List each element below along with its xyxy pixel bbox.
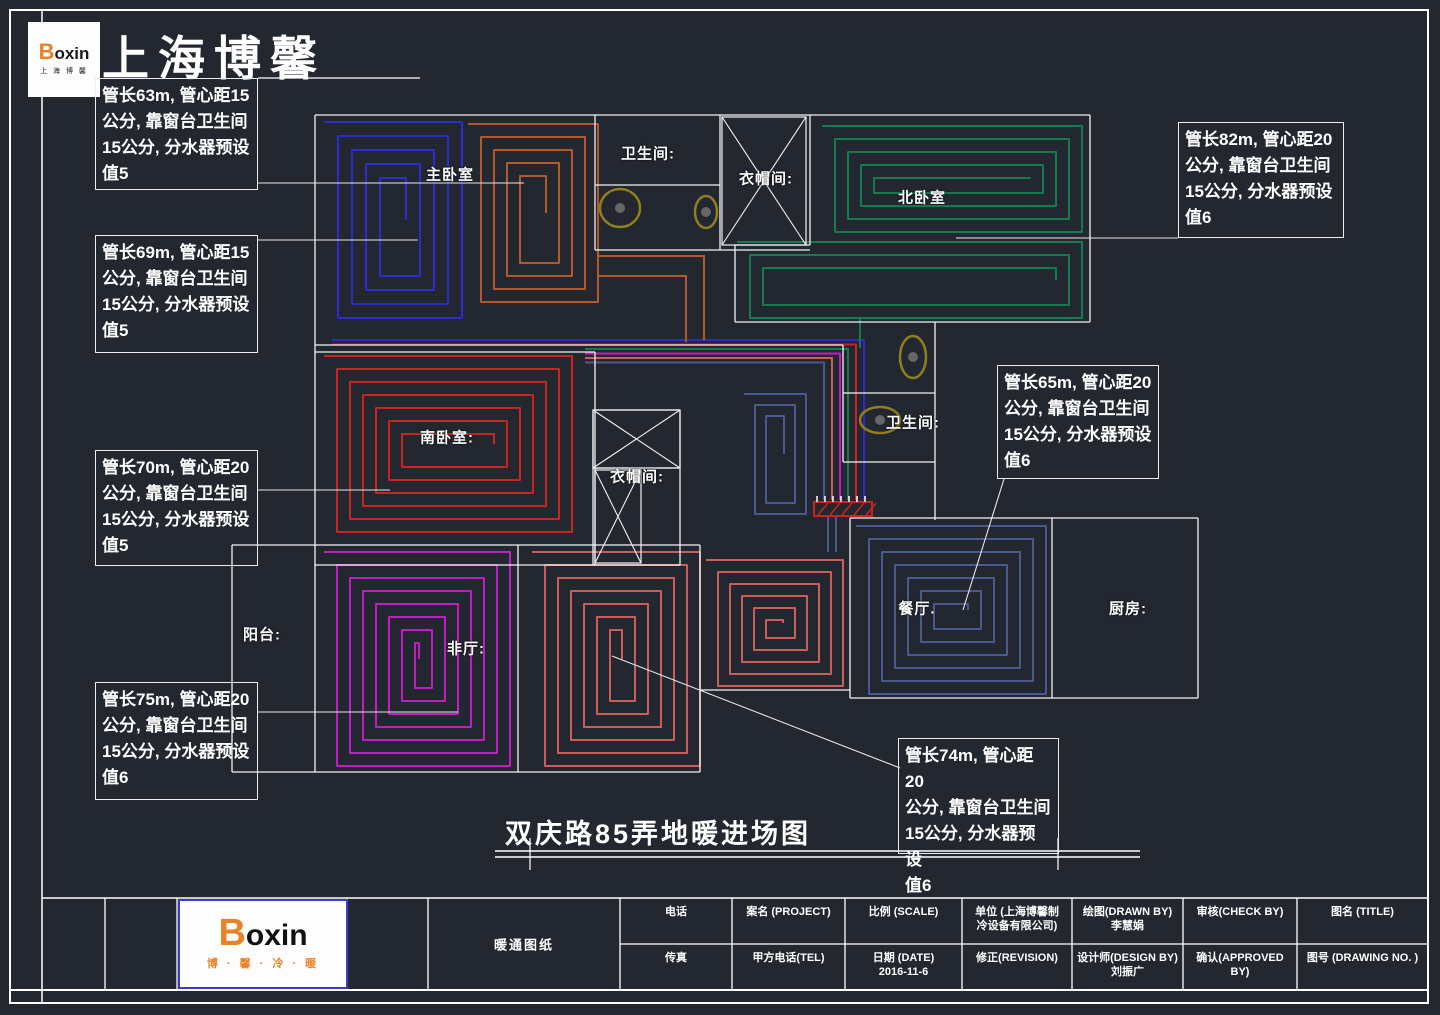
titleblock-cell-line: 单位 (上海博馨制 (965, 905, 1069, 919)
annotation-box-5: 管长82m, 管心距20公分, 靠窗台卫生间15公分, 分水器预设值6 (1178, 122, 1344, 238)
annotation-line: 公分, 靠窗台卫生间 (102, 481, 251, 507)
titleblock-cell: 单位 (上海博馨制冷设备有限公司) (965, 905, 1069, 943)
cad-drawing-canvas: Boxin 上 海 博 馨 上海博馨 双庆路85弄地暖进场图 Boxin 博 ·… (0, 0, 1440, 1015)
heating-coil-north-b (737, 242, 1082, 318)
pipe-bundle (332, 345, 856, 501)
annotation-line: 值5 (102, 318, 251, 344)
annotation-line: 值6 (1185, 205, 1337, 231)
titleblock-cell-line: 日期 (DATE) (848, 951, 959, 965)
titleblock-cell-line: 设计师(DESIGN BY) (1075, 951, 1180, 965)
titleblock-cell: 审核(CHECK BY) (1186, 905, 1294, 943)
leader-line (963, 479, 1004, 610)
titleblock-cell: 确认(APPROVED BY) (1186, 951, 1294, 989)
room-label-9: 非厅: (447, 638, 485, 659)
annotation-line: 管长63m, 管心距15 (102, 83, 251, 109)
logo-wordmark: Boxin (39, 43, 90, 63)
room-label-1: 主卧室 (426, 164, 474, 185)
annotation-line: 公分, 靠窗台卫生间 (102, 109, 251, 135)
titleblock-cell-line: 李慧娟 (1075, 919, 1180, 933)
doc-type-label: 暖通图纸 (494, 935, 554, 954)
fixture-drain-icon (908, 352, 918, 362)
logo-tagline: 博 · 馨 · 冷 · 暖 (207, 955, 319, 971)
logo-letter-b: B (39, 39, 55, 64)
titleblock-cell-line: 图名 (TITLE) (1300, 905, 1425, 919)
annotation-box-7: 管长74m, 管心距20公分, 靠窗台卫生间15公分, 分水器预设值6 (898, 738, 1059, 854)
titleblock-cell-line: 审核(CHECK BY) (1186, 905, 1294, 919)
room-label-8: 阳台: (243, 624, 281, 645)
heating-coil-master-orange (468, 124, 598, 302)
annotation-line: 公分, 靠窗台卫生间 (1004, 396, 1152, 422)
titleblock-cell-line: 甲方电话(TEL) (735, 951, 842, 965)
annotation-line: 15公分, 分水器预设 (102, 507, 251, 533)
titleblock-cell-line: 比例 (SCALE) (848, 905, 959, 919)
room-label-6: 衣帽间: (610, 466, 664, 487)
heating-coil-center-2 (706, 560, 843, 686)
annotation-line: 值5 (102, 161, 251, 187)
annotation-line: 管长65m, 管心距20 (1004, 370, 1152, 396)
room-label-11: 厨房: (1109, 598, 1147, 619)
annotation-line: 值6 (102, 765, 251, 791)
company-logo-titleblock: Boxin 博 · 馨 · 冷 · 暖 (181, 902, 345, 987)
heating-coil-master-blue (324, 122, 462, 318)
annotation-box-3: 管长70m, 管心距20公分, 靠窗台卫生间15公分, 分水器预设值5 (95, 450, 258, 566)
titleblock-cell: 日期 (DATE)2016-11-6 (848, 951, 959, 989)
annotation-line: 公分, 靠窗台卫生间 (102, 266, 251, 292)
fixture-drain-icon (875, 415, 885, 425)
annotation-line: 公分, 靠窗台卫生间 (102, 713, 251, 739)
titleblock-cell: 图名 (TITLE) (1300, 905, 1425, 943)
heating-coil-hall-small (744, 394, 806, 514)
fixture-drain-icon (615, 203, 625, 213)
annotation-line: 值6 (1004, 448, 1152, 474)
titleblock-cell-line: 修正(REVISION) (965, 951, 1069, 965)
drawing-title: 双庆路85弄地暖进场图 (505, 812, 811, 851)
annotation-line: 公分, 靠窗台卫生间 (1185, 153, 1337, 179)
titleblock-cell: 设计师(DESIGN BY)刘振广 (1075, 951, 1180, 989)
titleblock-cell-line: 2016-11-6 (848, 965, 959, 979)
heating-coil-living (324, 552, 510, 766)
titleblock-cell: 案名 (PROJECT) (735, 905, 842, 943)
titleblock-cell-line: 图号 (DRAWING NO. ) (1300, 951, 1425, 965)
annotation-line: 管长75m, 管心距20 (102, 687, 251, 713)
pipe-orange-connector (598, 256, 704, 340)
titleblock-cell: 比例 (SCALE) (848, 905, 959, 943)
heating-coil-center (532, 552, 700, 766)
titleblock-cell-line: 刘振广 (1075, 965, 1180, 979)
annotation-box-6: 管长65m, 管心距20公分, 靠窗台卫生间15公分, 分水器预设值6 (997, 365, 1159, 479)
annotation-line: 15公分, 分水器预设 (905, 821, 1052, 873)
annotation-line: 值5 (102, 533, 251, 559)
titleblock-cell-line: 案名 (PROJECT) (735, 905, 842, 919)
annotation-line: 15公分, 分水器预设 (102, 135, 251, 161)
logo-wordmark-large: Boxin (218, 918, 307, 951)
annotation-line: 管长69m, 管心距15 (102, 240, 251, 266)
fixture-drain-icon (701, 207, 711, 217)
room-label-2: 卫生间: (621, 143, 675, 164)
logo-letters-rest: oxin (54, 44, 89, 63)
logo-letter-b-large: B (218, 912, 245, 954)
annotation-line: 15公分, 分水器预设 (102, 292, 251, 318)
heating-coil-dining (856, 526, 1046, 694)
logo-subtext: 上 海 博 馨 (40, 66, 88, 76)
titleblock-cell-line: 冷设备有限公司) (965, 919, 1069, 933)
annotation-box-2: 管长69m, 管心距15公分, 靠窗台卫生间15公分, 分水器预设值5 (95, 235, 258, 353)
annotation-line: 公分, 靠窗台卫生间 (905, 795, 1052, 821)
company-logo-top: Boxin 上 海 博 馨 (28, 22, 100, 97)
annotation-box-4: 管长75m, 管心距20公分, 靠窗台卫生间15公分, 分水器预设值6 (95, 682, 258, 800)
room-label-7: 卫生间: (886, 412, 940, 433)
pipe-orange-connector (598, 276, 686, 342)
titleblock-cell-line: 确认(APPROVED BY) (1186, 951, 1294, 979)
titleblock-cell: 图号 (DRAWING NO. ) (1300, 951, 1425, 989)
annotation-line: 值6 (905, 873, 1052, 899)
room-label-10: 餐厅. (898, 598, 935, 619)
room-label-4: 北卧室 (898, 187, 946, 208)
titleblock-cell: 传真 (623, 951, 729, 989)
titleblock-cell-line: 传真 (623, 951, 729, 965)
annotation-line: 管长74m, 管心距20 (905, 743, 1052, 795)
annotation-line: 15公分, 分水器预设 (1004, 422, 1152, 448)
annotation-line: 15公分, 分水器预设 (1185, 179, 1337, 205)
annotation-line: 管长70m, 管心距20 (102, 455, 251, 481)
annotation-line: 15公分, 分水器预设 (102, 739, 251, 765)
titleblock-cell: 甲方电话(TEL) (735, 951, 842, 989)
leader-line (612, 656, 900, 768)
titleblock-cell: 电话 (623, 905, 729, 943)
room-label-5: 南卧室: (420, 427, 474, 448)
room-label-3: 衣帽间: (739, 168, 793, 189)
annotation-box-1: 管长63m, 管心距15公分, 靠窗台卫生间15公分, 分水器预设值5 (95, 78, 258, 190)
annotation-line: 管长82m, 管心距20 (1185, 127, 1337, 153)
titleblock-cell-line: 绘图(DRAWN BY) (1075, 905, 1180, 919)
heating-coil-north-a (822, 126, 1082, 232)
titleblock-cell: 修正(REVISION) (965, 951, 1069, 989)
logo-letters-rest-large: oxin (246, 919, 308, 952)
titleblock-cell: 绘图(DRAWN BY)李慧娟 (1075, 905, 1180, 943)
titleblock-cell-line: 电话 (623, 905, 729, 919)
